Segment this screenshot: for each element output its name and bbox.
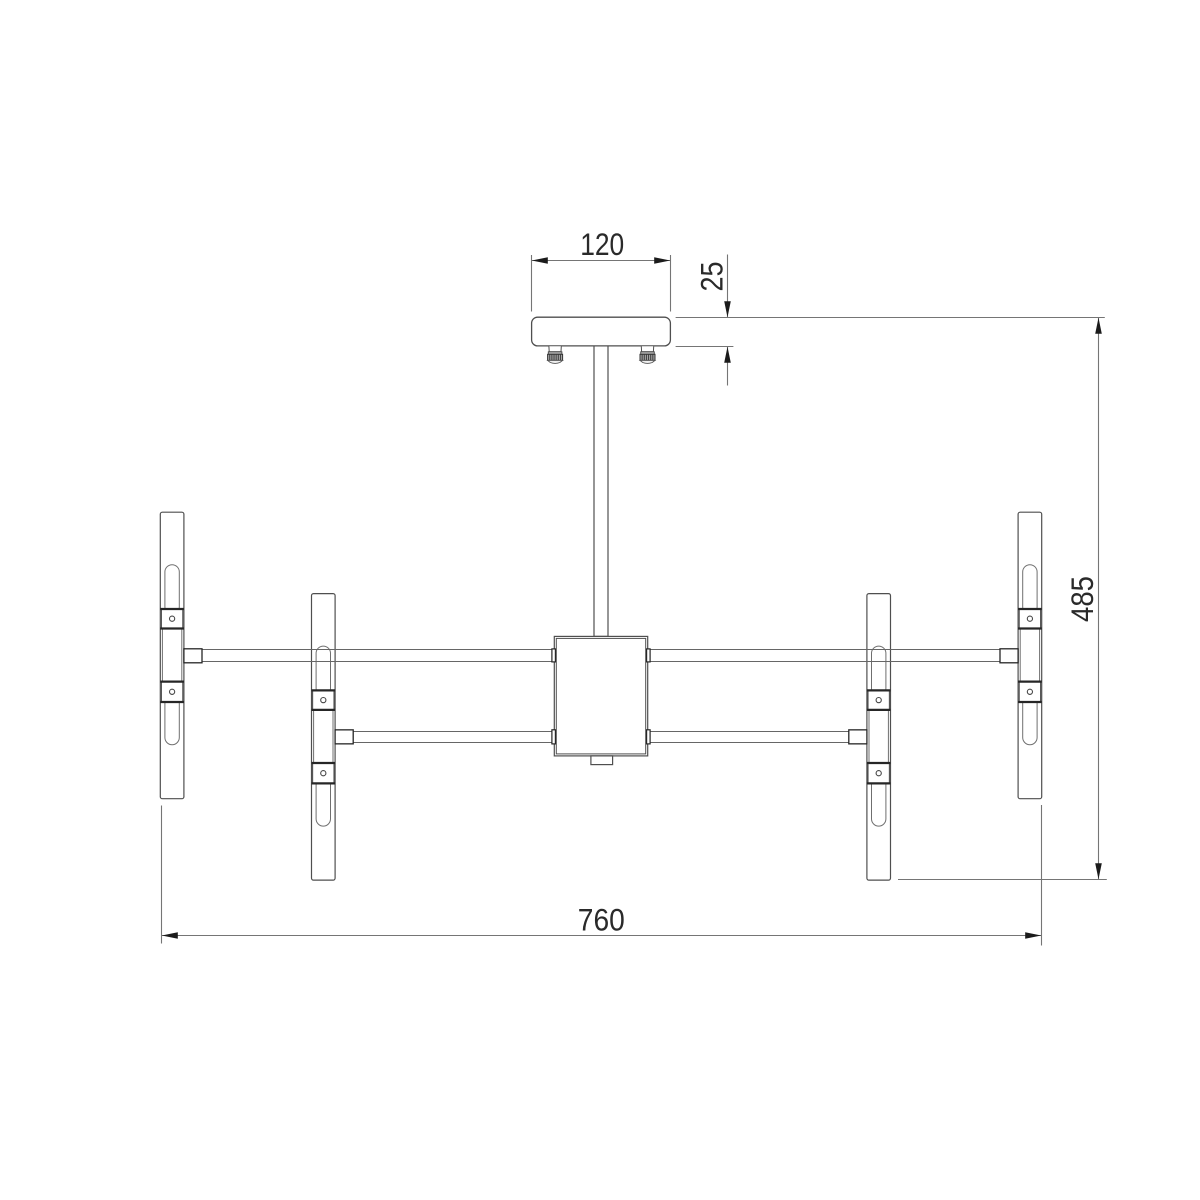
svg-text:25: 25 xyxy=(694,262,729,292)
svg-text:120: 120 xyxy=(580,227,624,262)
svg-text:760: 760 xyxy=(578,902,625,937)
svg-text:485: 485 xyxy=(1065,576,1100,622)
